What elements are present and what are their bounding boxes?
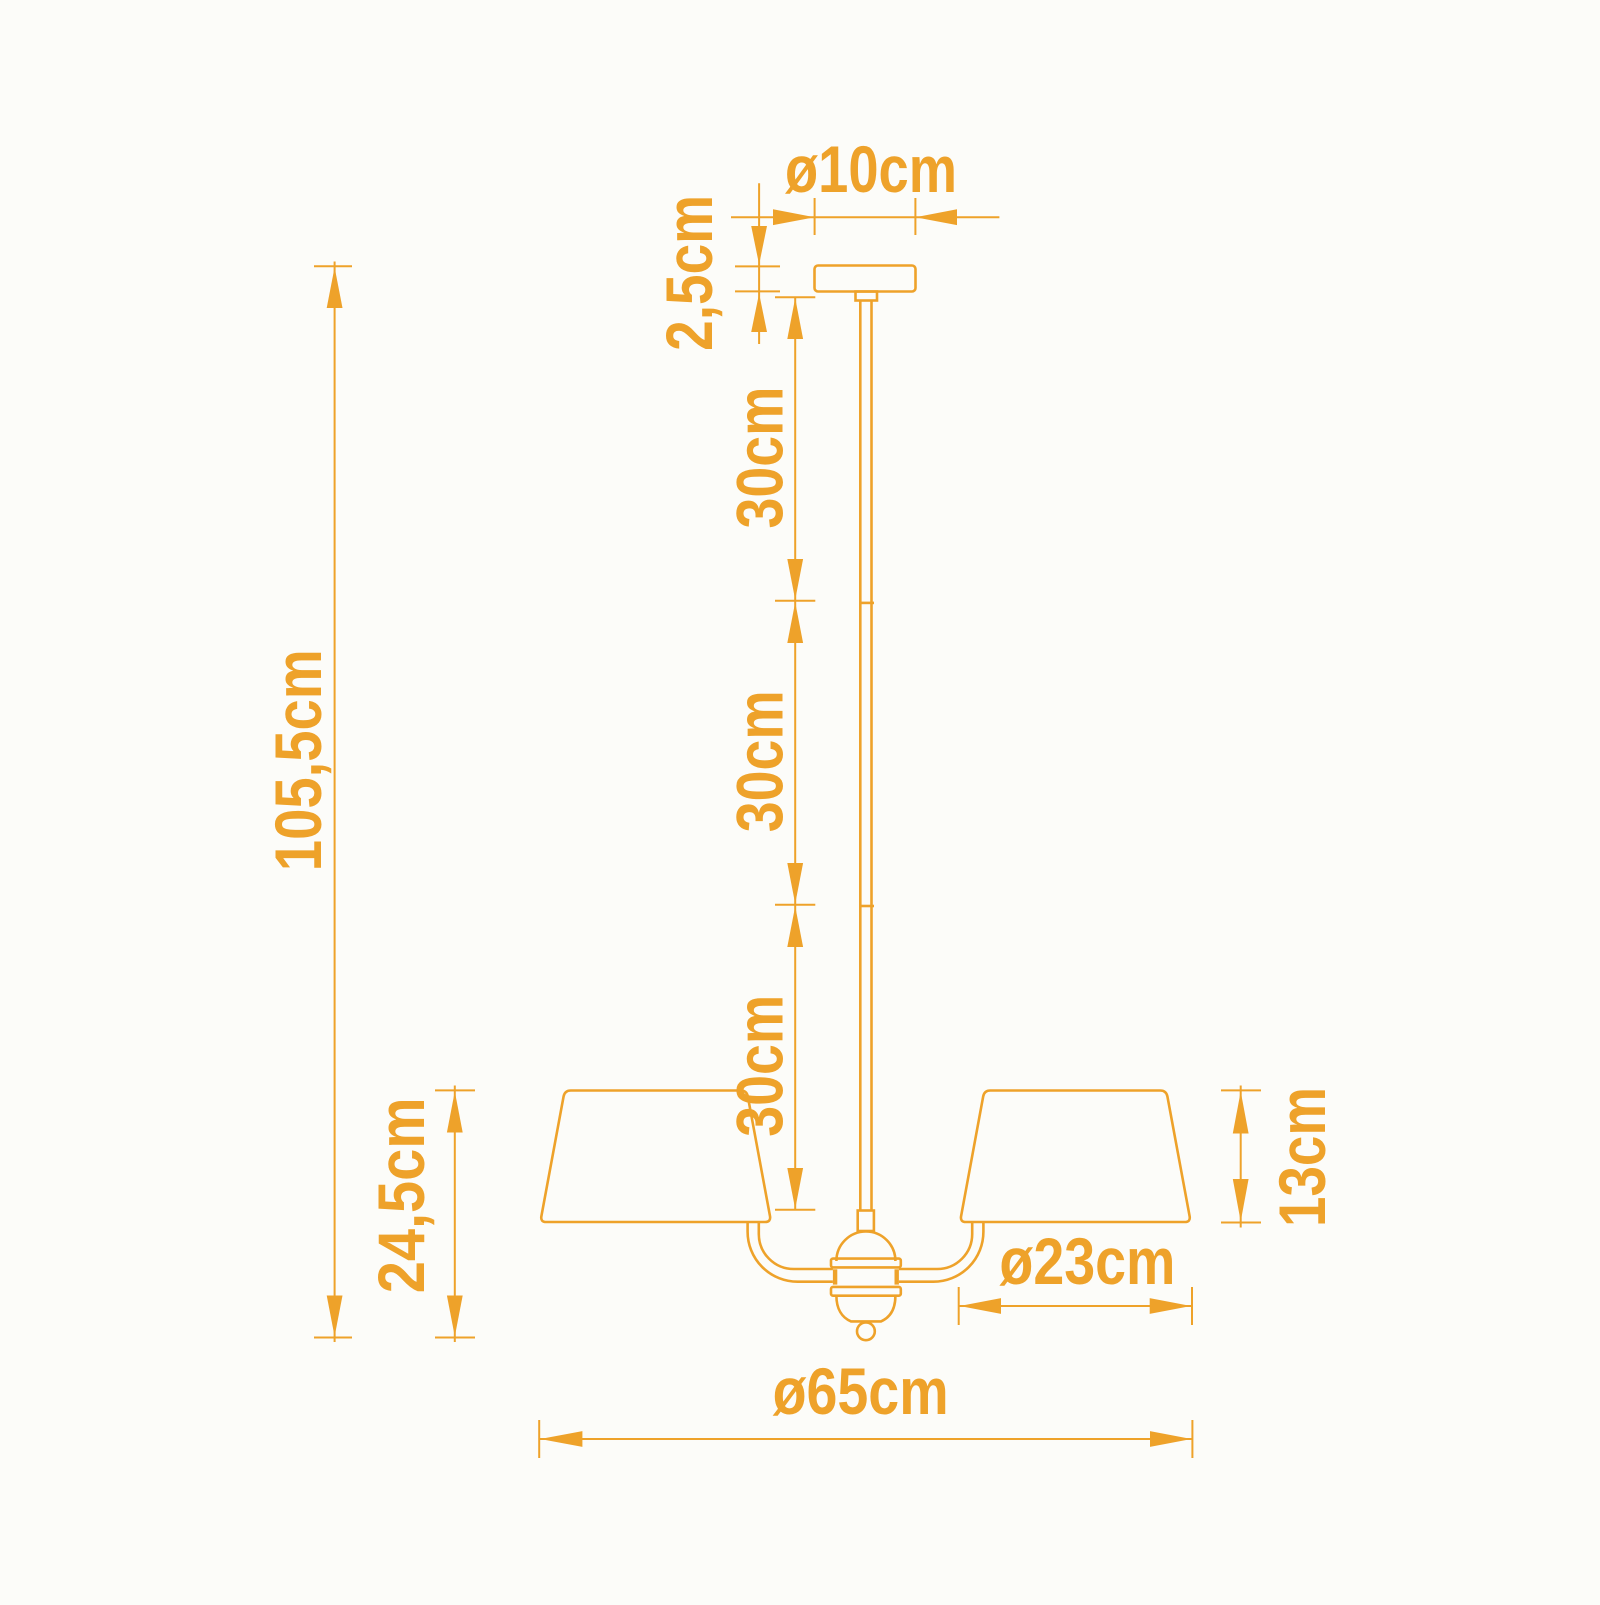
- svg-text:105,5cm: 105,5cm: [261, 649, 335, 871]
- svg-text:24,5cm: 24,5cm: [364, 1097, 438, 1293]
- svg-text:30cm: 30cm: [723, 387, 797, 529]
- svg-text:2,5cm: 2,5cm: [652, 195, 726, 351]
- svg-text:ø23cm: ø23cm: [999, 1224, 1175, 1298]
- svg-text:30cm: 30cm: [723, 690, 797, 832]
- svg-text:13cm: 13cm: [1265, 1087, 1339, 1227]
- svg-text:30cm: 30cm: [723, 995, 797, 1137]
- svg-text:ø65cm: ø65cm: [773, 1354, 949, 1428]
- svg-text:ø10cm: ø10cm: [785, 132, 957, 206]
